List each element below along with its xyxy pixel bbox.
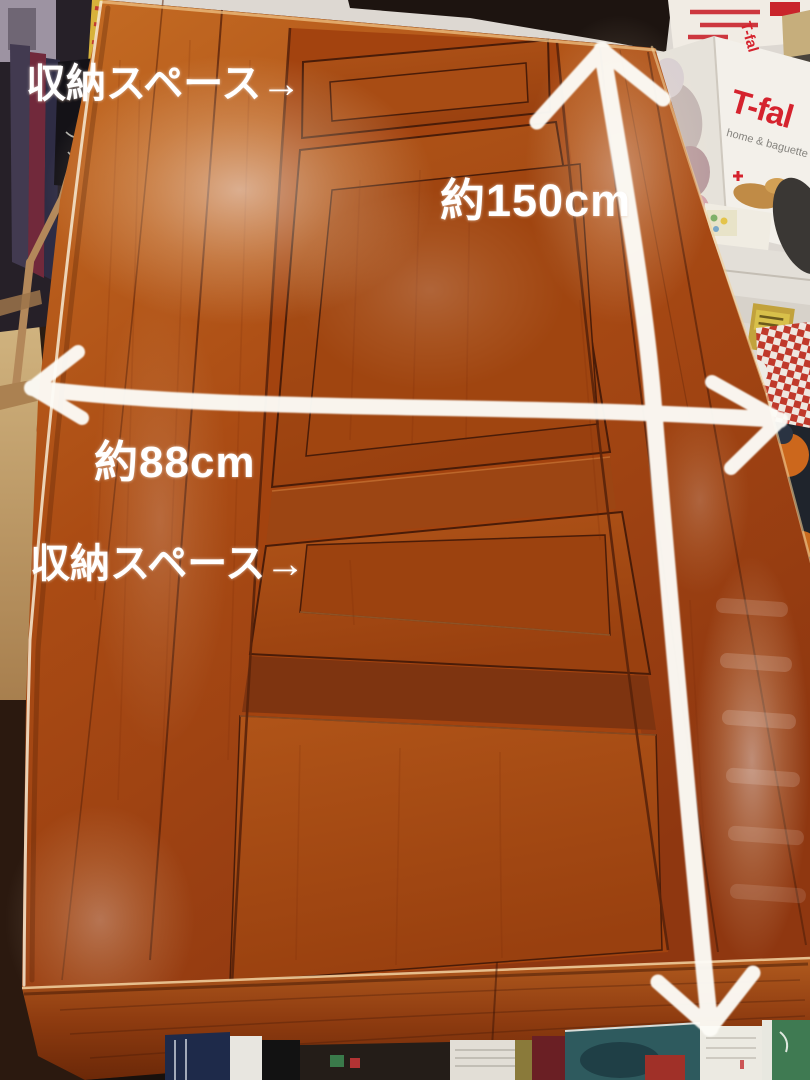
storage-space-label-bottom: 収納スペース→ — [30, 544, 305, 584]
book-black — [262, 1040, 300, 1080]
panel-plain-lower — [230, 716, 662, 982]
width-measurement-label: 約88cm — [94, 441, 256, 485]
annotated-table-photo: 収納スペース→ 約150cm 約88cm 収納スペース→ T-fal T-fal… — [0, 0, 810, 1080]
cardboard-box — [782, 10, 810, 60]
table-photo-illustration — [0, 0, 810, 1080]
book-white — [230, 1036, 262, 1080]
book-maroon — [532, 1036, 565, 1080]
storage-space-label-top: 収納スペース→ — [26, 64, 301, 104]
length-measurement-label: 約150cm — [440, 178, 631, 223]
